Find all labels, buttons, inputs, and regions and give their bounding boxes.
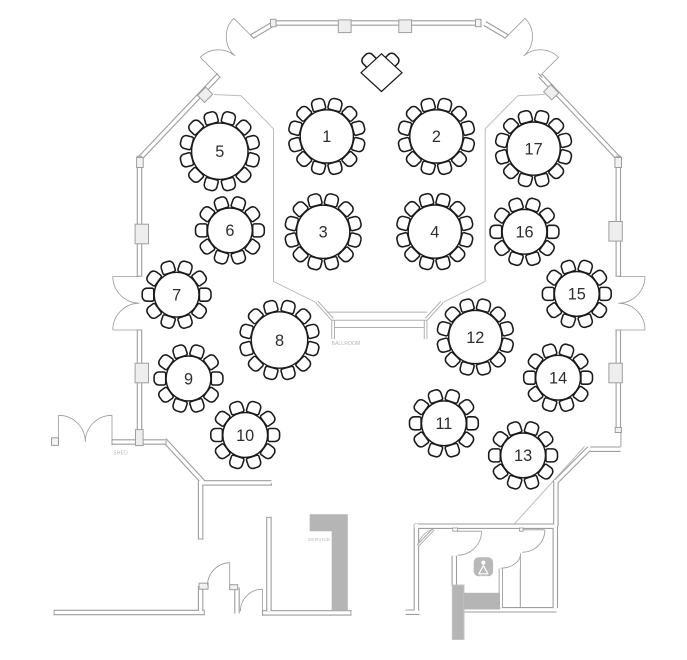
svg-text:12: 12 [466, 329, 484, 347]
svg-text:14: 14 [549, 370, 567, 388]
svg-text:13: 13 [514, 447, 532, 465]
svg-text:16: 16 [515, 224, 533, 242]
svg-text:1: 1 [322, 128, 331, 146]
svg-text:7: 7 [172, 287, 181, 305]
svg-text:4: 4 [430, 223, 439, 241]
svg-text:11: 11 [435, 415, 452, 433]
svg-text:3: 3 [319, 224, 328, 242]
svg-text:BALLROOM: BALLROOM [332, 341, 361, 347]
svg-text:10: 10 [236, 427, 254, 445]
svg-text:SERVICE: SERVICE [308, 537, 331, 543]
svg-text:17: 17 [525, 140, 543, 158]
svg-text:5: 5 [215, 143, 224, 161]
svg-text:6: 6 [225, 222, 234, 240]
svg-text:9: 9 [184, 370, 193, 388]
svg-text:15: 15 [568, 286, 586, 304]
svg-text:SHED: SHED [113, 451, 128, 457]
svg-text:2: 2 [432, 128, 441, 146]
svg-text:8: 8 [275, 332, 284, 350]
